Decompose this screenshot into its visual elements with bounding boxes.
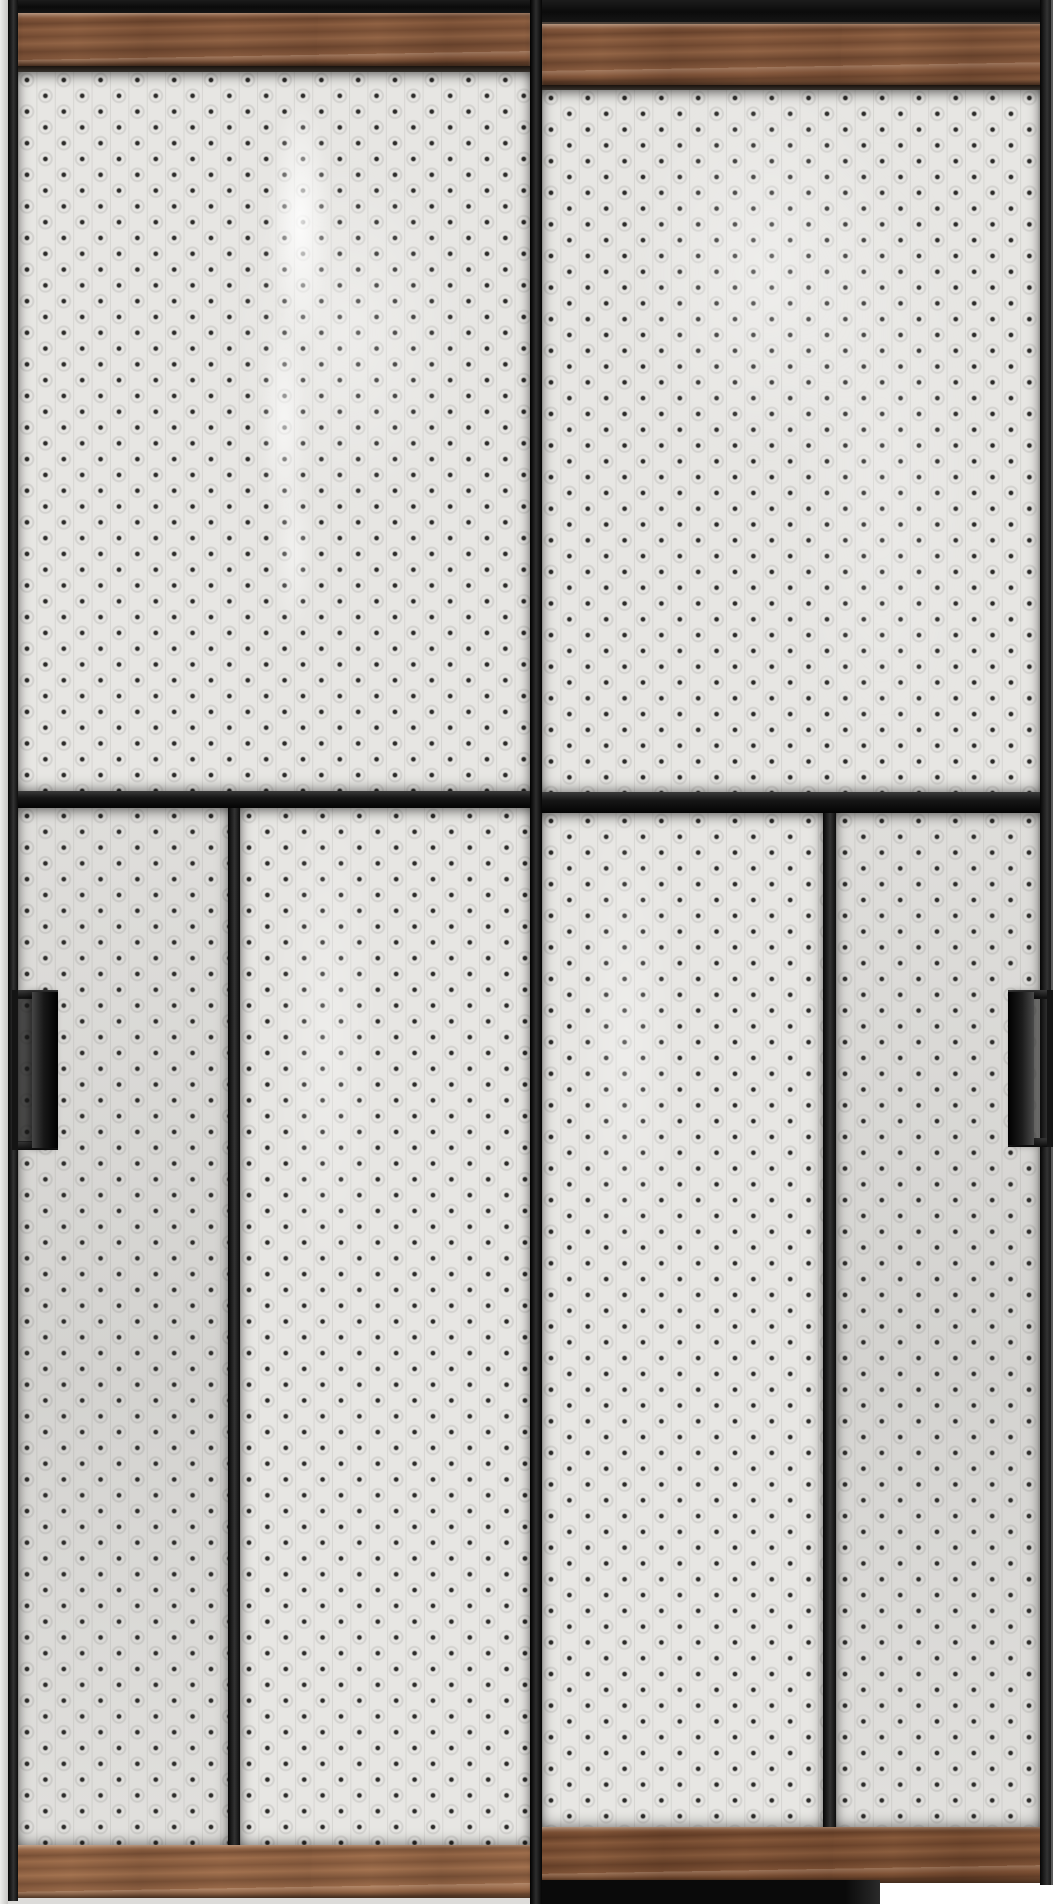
left-door-top-track (8, 0, 532, 13)
panel-shading (542, 813, 823, 1827)
handle-recess (1033, 998, 1048, 1139)
right-sliding-door (532, 0, 1053, 1904)
left-door-middle-rail (18, 791, 530, 808)
right-door-lower-right-panel (836, 813, 1040, 1827)
left-door-outer-edge (0, 0, 8, 1904)
right-door-middle-rail (542, 792, 1040, 813)
right-door-lower-left-panel (542, 813, 823, 1827)
panel-shading (836, 813, 1040, 1827)
left-door-lower-left-panel (18, 808, 228, 1845)
right-door-bottom-track (532, 1880, 880, 1904)
right-door-wood-bottom-rail (534, 1827, 1053, 1883)
left-door-left-stile (8, 0, 18, 1901)
right-door-top-track (532, 0, 1053, 22)
right-door-upper-glass-panel (542, 90, 1040, 792)
right-door-mullion (823, 813, 836, 1827)
left-door-mullion (228, 808, 240, 1845)
left-door-pull-handle (12, 990, 58, 1150)
right-door-wood-top-rail (542, 22, 1047, 85)
left-door-wood-top-rail (18, 13, 530, 66)
sliding-doors-photo (0, 0, 1053, 1904)
handle-recess (17, 998, 33, 1142)
right-door-pull-handle (1008, 990, 1053, 1147)
right-door-right-stile (1040, 0, 1053, 1885)
left-sliding-door (0, 0, 532, 1904)
door-divider-stile (530, 0, 542, 1904)
left-door-lower-right-panel (240, 808, 530, 1845)
left-door-floor-strip (0, 1898, 532, 1904)
panel-shading (18, 808, 228, 1845)
handle-grip-bar (1008, 992, 1034, 1145)
reflection-streak (18, 72, 530, 692)
left-door-upper-glass-panel (18, 72, 530, 791)
panel-shading (240, 808, 530, 1845)
handle-mount (12, 990, 18, 1150)
left-door-wood-bottom-rail (12, 1845, 532, 1898)
reflection-soft (542, 90, 1040, 730)
handle-grip-bar (32, 992, 58, 1148)
handle-mount (1047, 990, 1053, 1147)
